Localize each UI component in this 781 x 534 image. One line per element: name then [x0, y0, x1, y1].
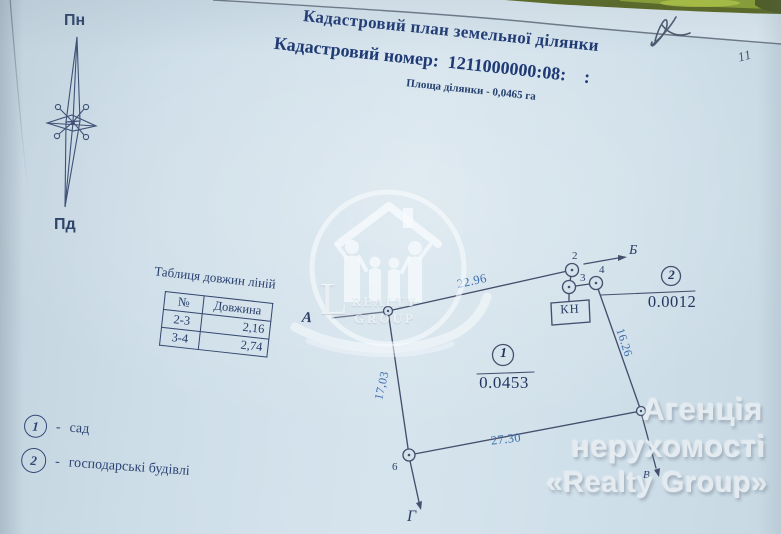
legend-label: сад — [69, 420, 90, 437]
compass-south-label: Пд — [54, 216, 76, 234]
logo-family-figures-icon — [336, 240, 430, 302]
section1-area-value: 0.0453 — [470, 374, 538, 393]
watermark-logo-word-group: GROUP — [354, 311, 416, 327]
cell-no: 3-4 — [160, 327, 201, 349]
compass-rose-icon — [47, 37, 96, 207]
kn-box-label: КН — [552, 302, 588, 317]
section2-area-value: 0.0012 — [639, 293, 705, 311]
logo-chimney-icon — [403, 208, 413, 228]
lengths-table-title: Таблиця довжин ліній — [154, 264, 277, 292]
legend-dash: - — [56, 419, 62, 435]
compass-north-label: Пн — [64, 12, 85, 30]
section2-number: 2 — [663, 268, 680, 282]
logo-swoosh2-icon — [308, 341, 452, 355]
legend-label: господарські будівлі — [68, 455, 190, 479]
point-label-3: 3 — [580, 272, 586, 284]
plot-boundary-left — [388, 311, 409, 455]
direction-arrow-b-icon — [584, 255, 627, 264]
length-right: 16.26 — [610, 318, 637, 368]
legend-number-circle: 1 — [23, 414, 47, 438]
direction-label-a: А — [301, 310, 312, 327]
legend-dash: - — [55, 454, 61, 470]
page-fold-line — [10, 0, 28, 192]
watermark-agency-line3: «Realty Group» — [547, 467, 768, 500]
plot-boundary-2-3 — [569, 270, 572, 287]
watermark-agency-line1: Агенція — [642, 392, 763, 428]
length-top: 22.96 — [440, 268, 504, 295]
handwritten-page-number: 11 — [736, 47, 753, 64]
point-label-4: 4 — [599, 264, 605, 276]
direction-label-g: Г — [407, 508, 416, 526]
length-bottom: 27.30 — [476, 430, 535, 451]
length-left: 17,03 — [370, 359, 395, 413]
watermark-agency-line2: нерухомості — [571, 429, 766, 465]
legend-item-2: 2 - господарські будівлі — [20, 447, 190, 484]
point-label-6: 6 — [392, 461, 398, 473]
lengths-table: № Довжина 2-3 2,16 3-4 2,74 — [159, 291, 273, 358]
legend-item-1: 1 - сад — [23, 414, 90, 441]
watermark-logo-word-realty: REALTY — [352, 295, 418, 310]
logo-roof-icon — [340, 206, 438, 244]
legend-number-circle: 2 — [20, 447, 47, 474]
background-surface-strip — [505, 0, 781, 14]
section1-number: 1 — [495, 346, 512, 361]
watermark-logo-letter: L — [320, 276, 348, 322]
direction-label-b: Б — [629, 243, 637, 258]
handwritten-mark-icon — [651, 17, 690, 46]
point-label-2: 2 — [572, 250, 578, 262]
direction-arrow-g-icon — [410, 461, 422, 510]
cadastral-plan-photo: Кадастровий план земельної ділянки Кадас… — [0, 0, 781, 534]
